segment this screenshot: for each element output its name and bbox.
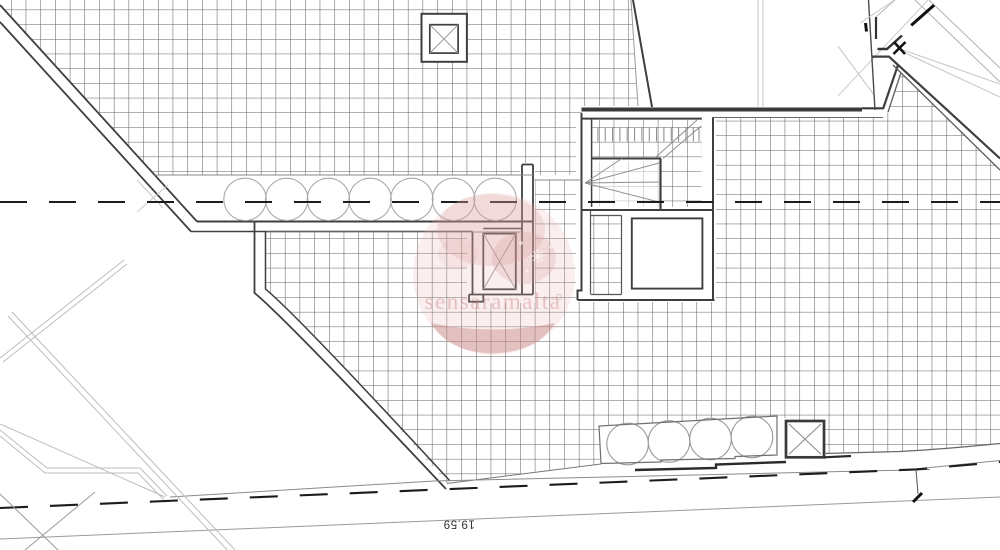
svg-text:sensaramalta: sensaramalta: [425, 289, 562, 314]
svg-text:19.59: 19.59: [443, 518, 475, 530]
